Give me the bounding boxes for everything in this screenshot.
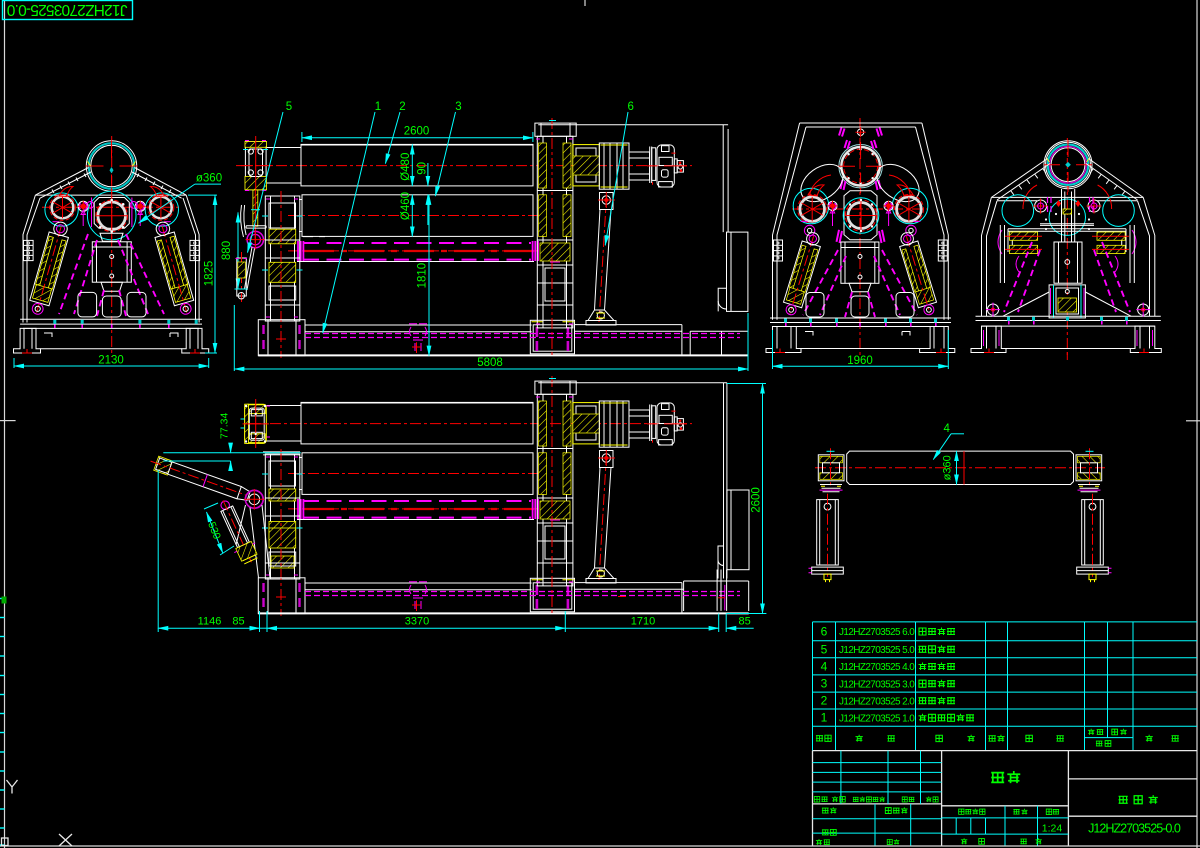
- svg-text:1: 1: [821, 711, 828, 725]
- svg-text:85: 85: [738, 616, 750, 628]
- svg-text:J12HZ2703525 2.0: J12HZ2703525 2.0: [839, 696, 915, 707]
- svg-text:J12HZ2703525 3.0: J12HZ2703525 3.0: [839, 679, 915, 690]
- svg-text:4: 4: [821, 659, 828, 673]
- svg-text:2: 2: [821, 694, 828, 708]
- svg-text:1:24: 1:24: [1042, 823, 1063, 835]
- svg-text:2130: 2130: [98, 355, 124, 367]
- svg-text:6: 6: [821, 625, 828, 639]
- svg-text:J12HZ2703525 6.0: J12HZ2703525 6.0: [839, 627, 915, 638]
- svg-text:J12HZ2703525 1.0: J12HZ2703525 1.0: [839, 713, 915, 724]
- svg-text:2600: 2600: [750, 487, 762, 513]
- svg-text:Ø460: Ø460: [400, 192, 412, 220]
- svg-text:1960: 1960: [847, 355, 873, 367]
- svg-text:J12HZ2703525 5.0: J12HZ2703525 5.0: [839, 645, 915, 656]
- svg-text:1810: 1810: [416, 263, 428, 289]
- svg-text:5808: 5808: [477, 357, 503, 369]
- svg-text:J12HZ2703525 4.0: J12HZ2703525 4.0: [839, 662, 915, 673]
- svg-text:3: 3: [455, 101, 461, 113]
- svg-text:3370: 3370: [405, 616, 429, 628]
- svg-text:ø360: ø360: [196, 173, 222, 185]
- svg-text:Ø480: Ø480: [400, 153, 412, 181]
- svg-text:3: 3: [821, 677, 828, 691]
- svg-text:1: 1: [375, 101, 381, 113]
- svg-text:90: 90: [417, 162, 429, 175]
- svg-text:1710: 1710: [631, 616, 655, 628]
- svg-text:1825: 1825: [204, 261, 216, 287]
- svg-text:J12HZ2703525-0.0: J12HZ2703525-0.0: [6, 1, 127, 18]
- svg-text:2600: 2600: [404, 126, 430, 138]
- svg-text:77.34: 77.34: [218, 413, 230, 439]
- svg-text:4: 4: [943, 423, 950, 435]
- svg-text:ø360: ø360: [942, 455, 954, 480]
- svg-text:2: 2: [399, 101, 405, 113]
- svg-text:880: 880: [221, 241, 233, 260]
- svg-text:5: 5: [286, 101, 292, 113]
- svg-text:1146: 1146: [198, 616, 222, 628]
- svg-text:85: 85: [232, 616, 244, 628]
- svg-text:J12HZ2703525-0.0: J12HZ2703525-0.0: [1088, 821, 1181, 835]
- svg-text:5: 5: [821, 642, 828, 656]
- svg-text:6: 6: [627, 101, 633, 113]
